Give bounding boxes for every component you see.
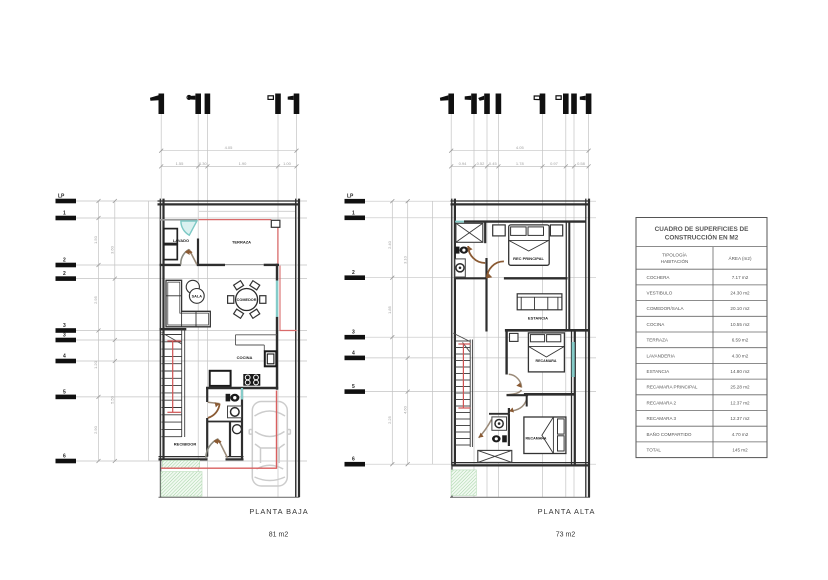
svg-text:ESTANCIA: ESTANCIA [647,369,671,374]
svg-text:PLANTA BAJA: PLANTA BAJA [249,507,308,516]
svg-text:1: 1 [63,211,66,217]
svg-text:2.90: 2.90 [93,425,98,434]
svg-text:6: 6 [63,454,66,460]
svg-text:BAÑO COMPARTIDO: BAÑO COMPARTIDO [647,431,692,437]
svg-text:COCHERA: COCHERA [647,275,671,280]
svg-text:1.85: 1.85 [387,305,392,314]
svg-text:2: 2 [352,270,355,276]
svg-text:4.60: 4.60 [403,405,408,414]
svg-text:SALA: SALA [192,295,203,299]
svg-text:TERRAZA: TERRAZA [232,239,251,244]
svg-text:4.30 m2: 4.30 m2 [732,353,749,358]
svg-text:0.45: 0.45 [489,161,498,166]
svg-text:0.58: 0.58 [577,161,586,166]
svg-text:25.28 m2: 25.28 m2 [730,385,750,390]
svg-text:5: 5 [63,389,66,395]
svg-text:4.70 m2: 4.70 m2 [732,432,749,437]
svg-text:0.97: 0.97 [550,161,559,166]
svg-text:81 m2: 81 m2 [269,532,289,539]
svg-text:2: 2 [63,258,66,264]
svg-text:24.30 m2: 24.30 m2 [730,291,750,296]
svg-text:0.94: 0.94 [459,161,468,166]
svg-text:LP: LP [58,194,65,200]
svg-text:2.95: 2.95 [93,295,98,304]
svg-text:5.50: 5.50 [109,395,114,404]
svg-text:TIPOLOGÍA: TIPOLOGÍA [662,252,688,258]
svg-text:2: 2 [63,271,66,277]
svg-text:RECAMARA 2: RECAMARA 2 [647,400,677,405]
svg-text:0.52: 0.52 [477,161,486,166]
svg-text:1.78: 1.78 [516,161,525,166]
svg-text:HABITACIÓN: HABITACIÓN [661,258,689,264]
svg-text:2.25: 2.25 [387,415,392,424]
svg-text:4: 4 [352,350,355,356]
svg-text:10.55 m2: 10.55 m2 [730,322,750,327]
svg-text:4.05: 4.05 [516,145,525,150]
svg-text:COMEDOR: COMEDOR [237,298,257,302]
svg-text:12.37 m2: 12.37 m2 [730,416,750,421]
svg-text:LP: LP [347,194,354,200]
svg-text:7.17 m2: 7.17 m2 [732,275,749,280]
svg-text:4.05: 4.05 [225,145,234,150]
svg-text:CUADRO DE SUPERFICIES DE: CUADRO DE SUPERFICIES DE [655,226,749,233]
svg-text:VESTIBULO: VESTIBULO [647,291,673,296]
svg-text:1.90: 1.90 [239,161,248,166]
svg-text:4: 4 [63,354,66,360]
svg-text:1.55: 1.55 [176,161,185,166]
svg-text:LAVANDERIA: LAVANDERIA [647,353,676,358]
svg-text:1.00: 1.00 [283,161,292,166]
svg-text:3.60: 3.60 [109,245,114,254]
svg-text:TOTAL: TOTAL [647,448,662,453]
svg-text:PLANTA ALTA: PLANTA ALTA [538,507,596,516]
svg-text:RECIBIDOR: RECIBIDOR [174,442,197,447]
svg-text:0.30: 0.30 [199,161,208,166]
svg-text:3: 3 [63,323,66,329]
svg-text:3: 3 [63,333,66,339]
svg-text:12.37 m2: 12.37 m2 [730,400,750,405]
svg-text:COCINA: COCINA [647,322,666,327]
svg-text:COCINA: COCINA [237,355,253,360]
svg-text:RECAMARA PRINCIPAL: RECAMARA PRINCIPAL [647,385,698,390]
svg-text:14.80 m2: 14.80 m2 [730,369,750,374]
svg-text:1.50: 1.50 [93,235,98,244]
svg-text:145 m2: 145 m2 [732,448,748,453]
svg-text:ÁREA (m2): ÁREA (m2) [729,255,752,261]
svg-text:RECAMARA 3: RECAMARA 3 [647,416,677,421]
svg-text:CONSTRUCCIÓN EN M2: CONSTRUCCIÓN EN M2 [665,233,739,242]
svg-text:20.10 m2: 20.10 m2 [730,306,750,311]
svg-text:73 m2: 73 m2 [556,532,576,539]
svg-text:COMEDOR/SALA: COMEDOR/SALA [647,306,685,311]
svg-text:6.59 m2: 6.59 m2 [732,338,749,343]
svg-text:5: 5 [352,384,355,390]
svg-text:RECAMARA: RECAMARA [536,359,557,363]
svg-text:3: 3 [352,330,355,336]
svg-text:ESTANCIA: ESTANCIA [528,316,548,321]
svg-text:TERRAZA: TERRAZA [647,338,669,343]
svg-text:RECAMARA: RECAMARA [526,437,547,441]
svg-text:REC PRINCIPAL: REC PRINCIPAL [513,256,544,261]
svg-text:3.10: 3.10 [403,255,408,264]
svg-text:2.40: 2.40 [387,240,392,249]
svg-text:1: 1 [352,210,355,216]
svg-text:LAVADO: LAVADO [173,238,189,243]
svg-text:6: 6 [352,457,355,463]
svg-text:1.20: 1.20 [93,360,98,369]
